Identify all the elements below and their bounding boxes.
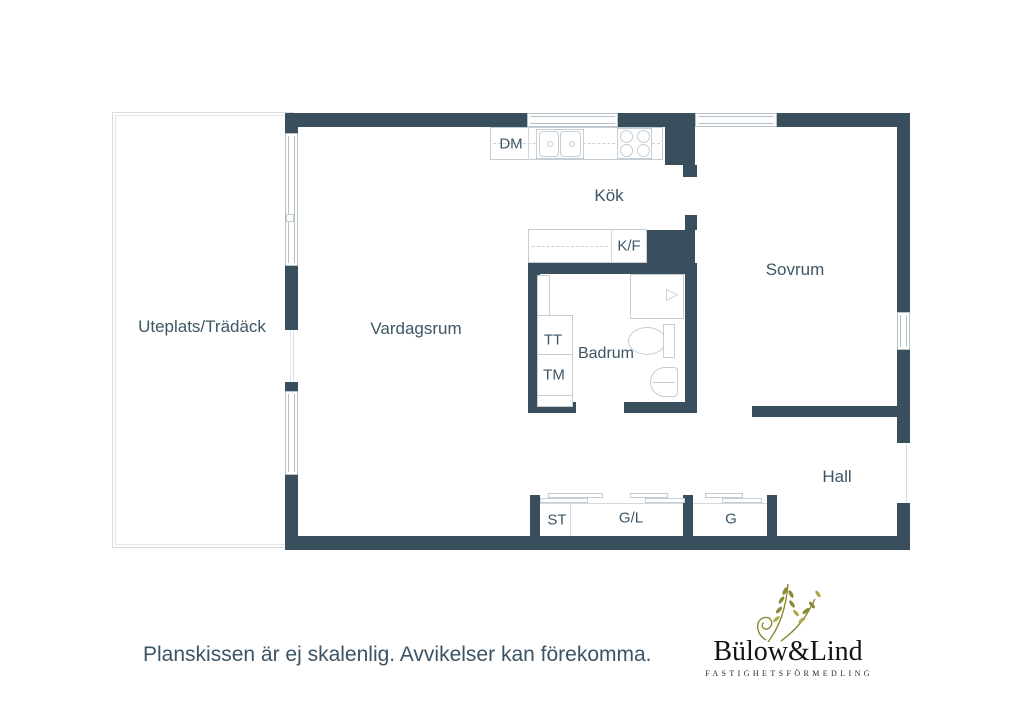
wall-segment <box>285 382 298 391</box>
entry-opening-line <box>906 443 907 503</box>
sink-basin-icon <box>560 131 581 157</box>
closet-front-line <box>693 503 767 504</box>
stove-burner-icon <box>637 130 650 143</box>
wall-segment <box>685 263 697 413</box>
counter-cell-line <box>611 229 612 263</box>
room-label-sovrum: Sovrum <box>766 260 825 280</box>
wall-segment <box>285 113 527 127</box>
wall-segment <box>683 165 697 177</box>
shower-icon: ▷ <box>666 287 678 303</box>
wall-segment <box>618 113 695 127</box>
wall-segment <box>777 113 910 127</box>
closet-front-line <box>540 503 683 504</box>
window-symbol <box>285 133 298 266</box>
window-symbol <box>285 391 298 475</box>
floorplan-page: ▷ Uteplats/Trädäck Vardagsrum Kök Sovrum… <box>0 0 1024 720</box>
label-washer: TM <box>543 367 565 384</box>
wall-segment <box>530 495 540 536</box>
stove-burner-icon <box>620 130 633 143</box>
bathroom-cabinet <box>537 275 550 316</box>
wall-segment <box>285 536 910 550</box>
logo-tagline: FASTIGHETSFÖRMEDLING <box>705 669 873 678</box>
logo-wordmark: Bülow&Lind <box>713 636 862 668</box>
wall-segment <box>647 230 695 263</box>
label-closet-st: ST <box>547 512 566 529</box>
sliding-door-symbol <box>722 498 762 503</box>
wall-segment <box>767 495 777 536</box>
room-label-vardagsrum: Vardagsrum <box>370 319 461 339</box>
wall-segment <box>528 263 697 274</box>
wall-segment <box>897 350 910 443</box>
label-fridge-freezer: K/F <box>617 238 640 255</box>
window-handle-symbol <box>286 214 294 222</box>
wall-segment <box>285 475 298 536</box>
room-label-badrum: Badrum <box>578 345 634 363</box>
toilet-tank-icon <box>663 324 675 358</box>
bathroom-cabinet <box>537 395 573 407</box>
room-label-hall: Hall <box>822 467 851 487</box>
wall-segment <box>685 215 697 230</box>
wall-segment <box>624 402 697 413</box>
label-dryer: TT <box>544 332 562 349</box>
label-closet-gl: G/L <box>619 510 643 527</box>
closet-divider-line <box>570 503 571 536</box>
wall-segment <box>285 266 298 330</box>
room-label-uteplats: Uteplats/Trädäck <box>138 317 266 337</box>
counter-cell-line <box>528 127 529 160</box>
sink-basin-icon <box>539 131 559 157</box>
sliding-door-symbol <box>645 498 685 503</box>
window-symbol <box>897 312 910 350</box>
label-dishwasher: DM <box>499 136 522 153</box>
wall-segment <box>665 127 695 165</box>
window-symbol <box>527 113 618 127</box>
counter-centerline <box>532 246 608 247</box>
disclaimer-text: Planskissen är ej skalenlig. Avvikelser … <box>143 643 652 667</box>
wall-segment <box>285 113 298 133</box>
label-closet-g: G <box>725 511 737 528</box>
room-label-kok: Kök <box>594 186 623 206</box>
sink-icon <box>650 367 678 397</box>
stove-burner-icon <box>637 144 650 157</box>
window-symbol <box>695 113 777 127</box>
sliding-door-symbol <box>540 498 588 503</box>
stove-burner-icon <box>620 144 633 157</box>
wall-segment <box>897 113 910 312</box>
wall-segment <box>752 406 897 417</box>
